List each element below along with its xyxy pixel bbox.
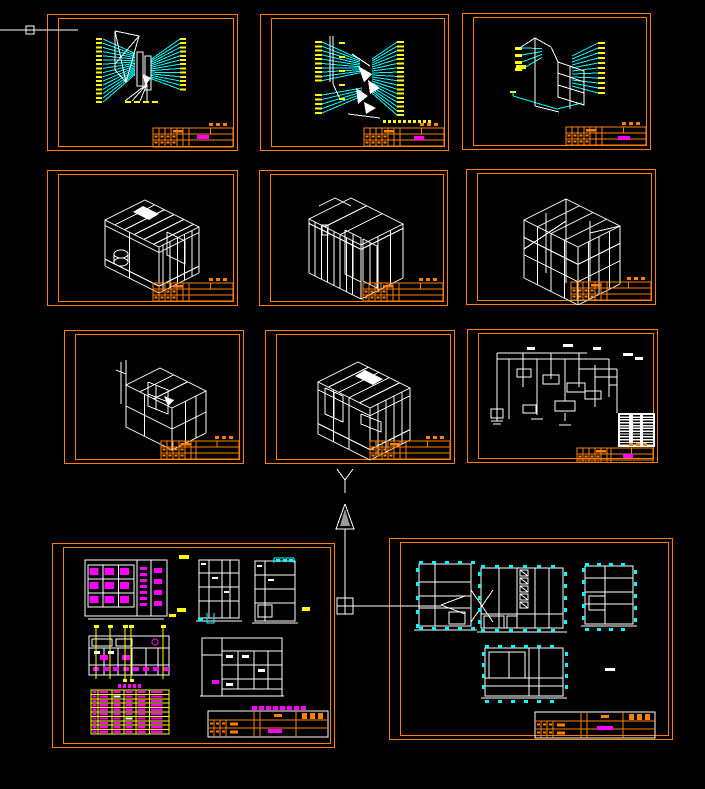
sheet-cable-diagram-3[interactable] — [462, 13, 651, 150]
cable-diagram-3-drawing — [462, 13, 651, 150]
cabinet-elevations-drawing — [52, 543, 335, 748]
sheet-iso-equipment[interactable] — [259, 170, 448, 306]
north-arrow-symbol[interactable] — [336, 504, 354, 598]
electrical-schematic-drawing — [467, 329, 658, 463]
sheet-cable-diagram-1[interactable] — [47, 14, 238, 151]
sheet-iso-unit[interactable] — [64, 330, 244, 464]
iso-frame-drawing — [466, 169, 656, 305]
sheet-container-elevations[interactable] — [389, 538, 673, 740]
sheet-electrical-schematic[interactable] — [467, 329, 658, 463]
cable-diagram-1-drawing — [47, 14, 238, 151]
cable-diagram-2-drawing — [260, 14, 449, 151]
iso-container-1-drawing — [47, 170, 238, 306]
sheet-cable-diagram-2[interactable] — [260, 14, 449, 151]
iso-container-2-drawing — [265, 330, 455, 464]
container-elevations-drawing — [389, 538, 673, 740]
iso-equipment-drawing — [259, 170, 448, 306]
cad-drawing-canvas — [0, 0, 705, 789]
sheet-iso-container-1[interactable] — [47, 170, 238, 306]
sheet-iso-container-2[interactable] — [265, 330, 455, 464]
wye-branch-symbol[interactable] — [337, 469, 353, 493]
sheet-iso-frame[interactable] — [466, 169, 656, 305]
sheet-cabinet-elevations[interactable] — [52, 543, 335, 748]
iso-unit-drawing — [64, 330, 244, 464]
